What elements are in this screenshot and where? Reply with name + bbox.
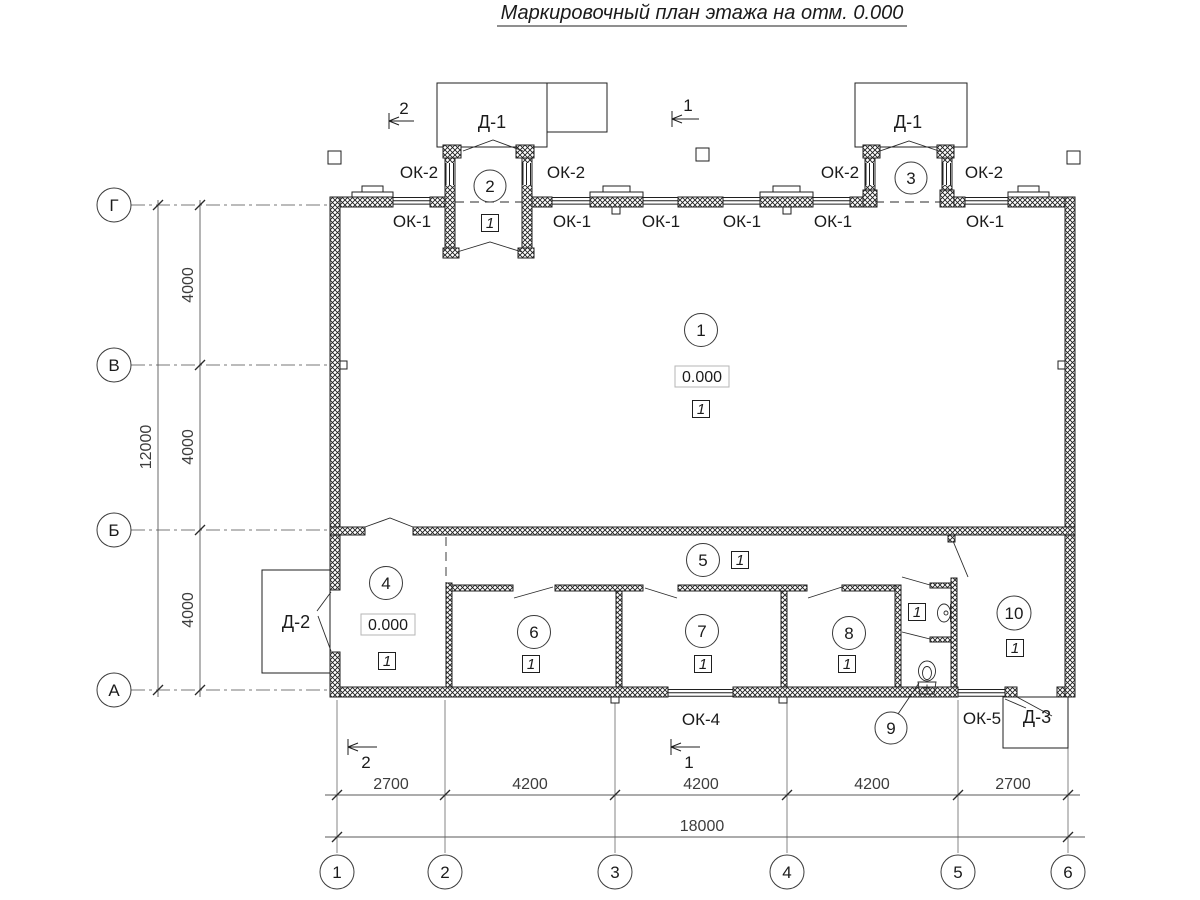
- floor-type-room2: 1: [486, 215, 494, 232]
- wall-right: [1065, 197, 1075, 697]
- wall-bottom: [733, 687, 958, 697]
- door-swing-room6: [514, 587, 553, 598]
- axis-bubbles-left: Г В Б А: [97, 188, 131, 707]
- axis-label-2: 2: [440, 863, 449, 882]
- partition-room7-room8: [781, 585, 787, 687]
- wall-top: [430, 197, 445, 207]
- drawing-title: Маркировочный план этажа на отм. 0.000: [497, 2, 907, 26]
- label-ok1: ОК-1: [723, 212, 761, 231]
- wc-stub-wall: [930, 637, 951, 642]
- floor-plan-svg: Маркировочный план этажа на отм. 0.000 4…: [0, 0, 1200, 900]
- section-mark-1-top: 1: [672, 96, 699, 127]
- partition-room6-room7: [616, 585, 622, 687]
- axis-bubbles-bottom: 1 2 3 4 5 6: [320, 855, 1085, 889]
- dim-bottom-1: 2700: [373, 776, 409, 793]
- room-label-3: 3: [906, 169, 915, 188]
- room-label-6: 6: [529, 623, 538, 642]
- door-swing-room8: [808, 587, 842, 598]
- elevation-marks: 0.000 0.000: [361, 366, 729, 635]
- window-ok5: [958, 690, 1005, 697]
- door-swing-d2: [318, 616, 331, 651]
- wc-stub-wall: [930, 583, 951, 588]
- dim-left-total: 12000: [138, 425, 155, 470]
- window-ok4: [668, 690, 733, 697]
- window-ok2-3: [866, 163, 875, 185]
- window-ok1-2: [552, 198, 590, 205]
- axis-label-3: 3: [610, 863, 619, 882]
- label-d1: Д-1: [894, 112, 922, 132]
- label-ok1: ОК-1: [642, 212, 680, 231]
- dim-bottom-total: 18000: [680, 818, 725, 835]
- door-swing-corridor: [365, 518, 413, 527]
- room-label-8: 8: [844, 624, 853, 643]
- floor-type-room7: 1: [699, 656, 707, 673]
- axis-label-5: 5: [953, 863, 962, 882]
- axis-label-6: 6: [1063, 863, 1072, 882]
- label-ok1: ОК-1: [966, 212, 1004, 231]
- axis-label-a: А: [108, 681, 120, 700]
- wall-bottom: [330, 687, 668, 697]
- floor-type-room10: 1: [1011, 640, 1019, 657]
- wall-bottom: [1005, 687, 1017, 697]
- partition-wc-room10: [951, 578, 957, 687]
- axis-label-v: В: [108, 356, 119, 375]
- wall-top: [532, 197, 552, 207]
- door-swing-d1-left-in: [457, 242, 522, 252]
- room-label-7: 7: [697, 622, 706, 641]
- label-ok1: ОК-1: [393, 212, 431, 231]
- label-ok2: ОК-2: [547, 163, 585, 182]
- axis-label-b: Б: [108, 521, 119, 540]
- drawing-sheet: Маркировочный план этажа на отм. 0.000 4…: [0, 0, 1200, 900]
- vestibule-left-wall: [522, 145, 532, 258]
- column-nub: [783, 207, 791, 214]
- axis-label-g: Г: [109, 196, 118, 215]
- door-swing-room7: [645, 588, 677, 598]
- floor-type-room4: 1: [383, 653, 391, 670]
- dim-left-1: 4000: [180, 267, 197, 303]
- column-nub: [779, 697, 787, 703]
- column-nub: [611, 697, 619, 703]
- label-ok2: ОК-2: [821, 163, 859, 182]
- section-mark-1-bottom: 1: [671, 739, 700, 772]
- elevation-value: 0.000: [682, 369, 722, 386]
- window-ok2-2: [523, 163, 532, 185]
- dim-left-2: 4000: [180, 429, 197, 465]
- column-marker: [1067, 151, 1080, 164]
- wall-top: [590, 197, 643, 207]
- elevation-value: 0.000: [368, 617, 408, 634]
- column-nub: [1058, 361, 1065, 369]
- room-label-10: 10: [1005, 604, 1024, 623]
- window-ok1-3: [643, 198, 678, 205]
- corridor-wall: [413, 527, 1075, 535]
- bottom-dimension-lines: 2700 4200 4200 4200 2700 18000: [325, 776, 1085, 842]
- window-ok1-1: [393, 198, 430, 205]
- floor-type-room1: 1: [697, 401, 705, 418]
- axis-label-4: 4: [782, 863, 791, 882]
- label-d2: Д-2: [282, 612, 310, 632]
- room-label-1: 1: [696, 321, 705, 340]
- room-label-4: 4: [381, 574, 390, 593]
- column-marker: [328, 151, 341, 164]
- label-d1: Д-1: [478, 112, 506, 132]
- door-swing-d1-left-out: [463, 140, 523, 151]
- label-ok1: ОК-1: [814, 212, 852, 231]
- section-mark-2-top: 2: [389, 99, 414, 129]
- label-ok2: ОК-2: [965, 163, 1003, 182]
- floor-type-room8: 1: [843, 656, 851, 673]
- pilasters: [328, 148, 1080, 703]
- dim-left-3: 4000: [180, 592, 197, 628]
- floor-type-room5: 1: [736, 552, 744, 569]
- floor-type-marks: 1 1 1 1 1 1 1 1 1: [379, 215, 1024, 674]
- axis-label-1: 1: [332, 863, 341, 882]
- corridor-wall: [330, 527, 365, 535]
- left-dimension-lines: 4000 4000 4000 12000: [138, 200, 205, 697]
- section-label-2: 2: [361, 753, 370, 772]
- dim-bottom-5: 2700: [995, 776, 1031, 793]
- room-label-5: 5: [698, 551, 707, 570]
- section-label-1: 1: [684, 753, 693, 772]
- section-mark-2-bottom: 2: [348, 739, 377, 772]
- partition-room8-top: [842, 585, 895, 591]
- floor-type-wc: 1: [913, 604, 921, 621]
- room-label-2: 2: [485, 177, 494, 196]
- vestibule-left-wall: [445, 145, 455, 258]
- dim-bottom-3: 4200: [683, 776, 719, 793]
- window-ok1-6: [965, 198, 1008, 205]
- partition-room6-top: [452, 585, 513, 591]
- column-marker: [696, 148, 709, 161]
- floor-type-room6: 1: [527, 656, 535, 673]
- label-ok5: ОК-5: [963, 709, 1001, 728]
- label-ok1: ОК-1: [553, 212, 591, 231]
- window-ok1-5: [813, 198, 850, 205]
- section-label-2: 2: [399, 99, 408, 118]
- door-swing-wc-lower: [902, 632, 930, 639]
- door-swing-d2: [317, 592, 331, 611]
- dim-bottom-2: 4200: [512, 776, 548, 793]
- label-d3: Д-3: [1023, 707, 1051, 727]
- room-label-9: 9: [886, 719, 895, 738]
- opening-dashes: [446, 202, 942, 583]
- partition-room7-top: [678, 585, 807, 591]
- partition-room8-wc: [895, 585, 901, 687]
- wall-top: [760, 197, 813, 207]
- window-ok2-4: [943, 163, 952, 185]
- column-nub: [340, 361, 347, 369]
- section-label-1: 1: [683, 96, 692, 115]
- label-ok2: ОК-2: [400, 163, 438, 182]
- column-nub: [612, 207, 620, 214]
- window-ok2-1: [446, 163, 455, 185]
- door-swing-wc-upper: [902, 577, 930, 585]
- door-swing-room10: [953, 541, 968, 577]
- wall-left: [330, 652, 340, 697]
- partition-room4-room6: [446, 583, 452, 687]
- dim-bottom-4: 4200: [854, 776, 890, 793]
- partition-room6-top: [555, 585, 643, 591]
- porch-entry-left-annex: [547, 83, 607, 132]
- label-ok4: ОК-4: [682, 710, 720, 729]
- washbasin-icon: [938, 604, 951, 622]
- title-text: Маркировочный план этажа на отм. 0.000: [501, 2, 904, 24]
- window-ok1-4: [723, 198, 760, 205]
- wall-top: [678, 197, 723, 207]
